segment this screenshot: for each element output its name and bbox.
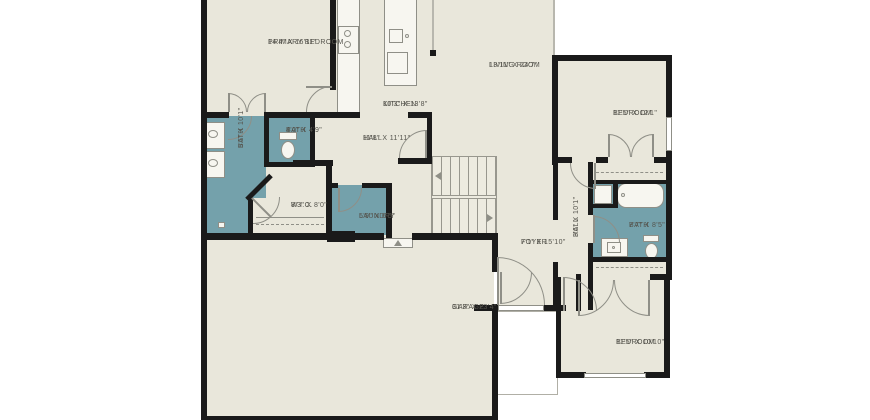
vanity-basin-icon (208, 159, 218, 167)
wall-segment (613, 184, 618, 206)
wall-segment (552, 55, 672, 61)
room-dims: 11'8" X 11'11" (363, 134, 411, 145)
room-dims: 3'6" X 10'1" (572, 197, 583, 237)
wall-segment (553, 160, 558, 220)
toilet-tank-icon (643, 235, 659, 242)
closet-shelf-dash (596, 172, 663, 173)
wall-segment (201, 0, 207, 420)
closet-shelf (594, 166, 665, 179)
room-dims: 8'3" X 8'0" (291, 201, 327, 212)
kitchen-counter (337, 0, 360, 118)
wall-segment (412, 233, 498, 240)
wall-segment (666, 55, 672, 119)
room-dims: 11'5" X 10'10" (616, 338, 665, 349)
stair-direction-arrow-icon (435, 172, 441, 180)
wall-segment (264, 112, 269, 167)
wall-segment (644, 372, 670, 378)
wall-segment (207, 112, 229, 118)
wall-segment (362, 183, 388, 188)
door-leaf (563, 277, 565, 311)
wall-segment (593, 180, 672, 184)
wic-rod-dash (256, 224, 324, 225)
wall-segment (248, 196, 253, 238)
toilet-bowl-icon (281, 141, 295, 159)
window (584, 373, 646, 378)
wall-segment (596, 157, 608, 163)
wall-segment (326, 160, 332, 238)
door-leaf (648, 280, 650, 316)
dishwasher-icon (387, 52, 408, 74)
door-leaf (425, 130, 427, 158)
island-faucet-icon (405, 34, 409, 38)
wall-segment (386, 183, 392, 238)
linen-closet (594, 185, 612, 204)
wall-segment (201, 416, 498, 420)
room-dims: 4'0" X 4'9" (286, 126, 322, 137)
room-dims: 5'9" X 6'5" (359, 212, 395, 223)
front-door-leaf (497, 257, 499, 305)
closet-shelf-dash (596, 267, 663, 268)
door-leaf (608, 134, 610, 157)
door-leaf (652, 134, 654, 157)
wall-segment (553, 262, 558, 310)
room-dims: 10'3" X 13'8" (383, 100, 428, 111)
step-up-arrow-icon (394, 240, 402, 246)
wall-pier (327, 231, 355, 242)
wall-segment (556, 372, 586, 378)
stairs (431, 156, 497, 236)
wall-segment (492, 304, 498, 420)
wall-segment (326, 183, 338, 188)
room-dims: 14'4" X 16'11" (268, 38, 317, 49)
stair-treads-upper (432, 157, 496, 195)
door-leaf (264, 93, 266, 112)
porch (496, 311, 558, 395)
door-leaf (228, 93, 230, 112)
room-dims: 7'7" X 8'5" (629, 221, 665, 232)
wall-segment (593, 257, 672, 262)
wall-segment (552, 55, 558, 165)
stove-burner-icon (344, 30, 351, 37)
bath-faucet-icon (612, 246, 615, 249)
room-dims: 13'11" X 24'7" (489, 61, 538, 72)
wall-segment (427, 112, 432, 164)
stove-burner-icon (344, 41, 351, 48)
closet-shelf (594, 262, 665, 273)
door-leaf (306, 86, 332, 88)
wall-cap (430, 50, 436, 56)
window (666, 117, 672, 151)
shower-drain-icon (218, 222, 225, 228)
door-leaf (338, 188, 340, 212)
door-leaf (594, 163, 596, 189)
stair-direction-arrow-icon (487, 214, 493, 222)
wall-segment (593, 204, 618, 208)
room-dims: 5'5" X 10'1" (237, 108, 248, 148)
room-dims: 7'1" X 15'10" (521, 238, 566, 249)
floor-garage (204, 238, 494, 420)
wall-segment (398, 158, 432, 164)
cut-wall-line (553, 0, 555, 55)
wall-segment (310, 112, 315, 167)
floor-plan: PRIMARY BEDROOM 14'4" X 16'11" KITCHEN 1… (0, 0, 870, 420)
wall-segment (664, 274, 670, 378)
tub-faucet-icon (621, 193, 625, 197)
cut-wall-line (432, 0, 434, 50)
wall-segment (201, 233, 384, 240)
shower-area (204, 196, 252, 233)
door-leaf (593, 215, 595, 243)
room-dims: 11'5" X 12'1" (613, 109, 657, 120)
vanity-basin-icon (208, 130, 218, 138)
island-sink-icon (389, 29, 403, 43)
front-door-threshold (498, 305, 544, 311)
room-dims: 31'3" X 23'4" (452, 303, 497, 314)
